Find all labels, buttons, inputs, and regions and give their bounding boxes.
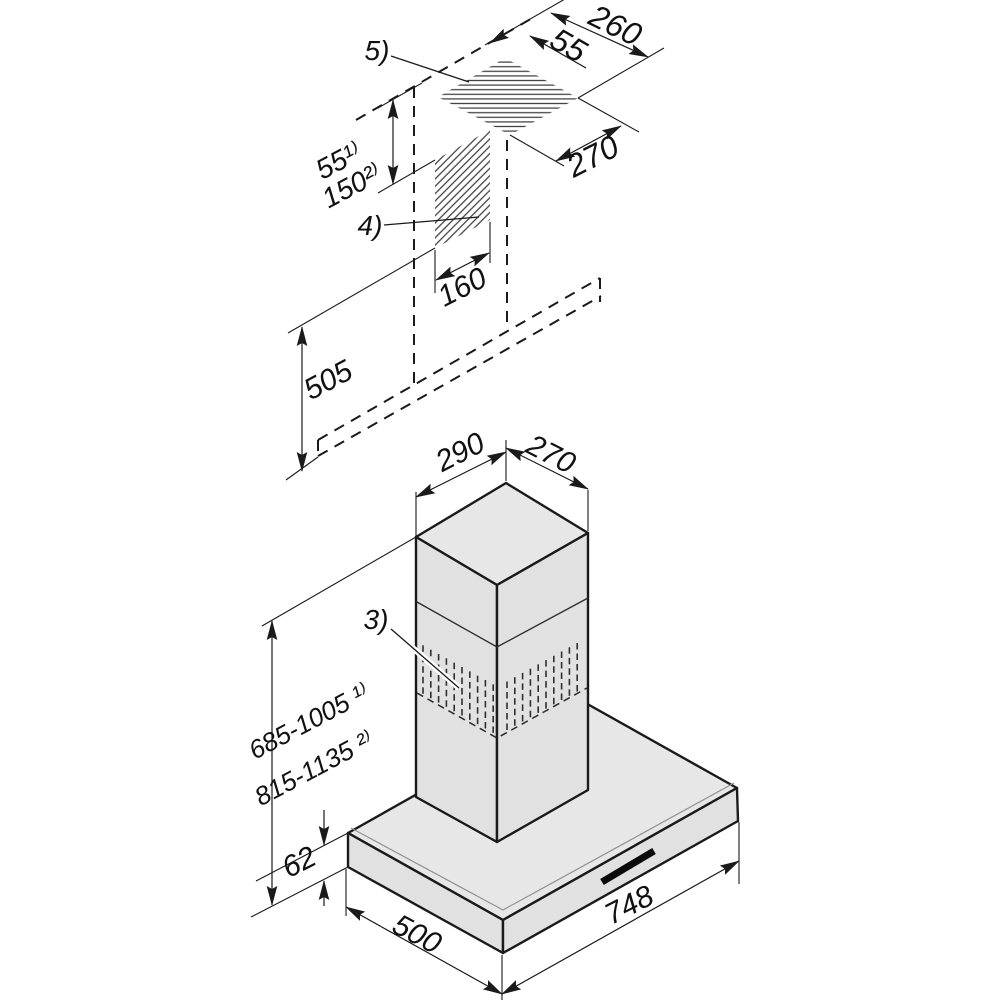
dim-wall-duct-width-label: 160 xyxy=(432,261,492,313)
chimney-right-face xyxy=(497,533,588,842)
hood-dimension-diagram: 260 55 270 55¹⁾ 150²⁾ 5) 4) 160 505 290 … xyxy=(0,0,1000,1000)
chimney xyxy=(416,483,588,842)
dim-canopy-height-label: 62 xyxy=(277,840,322,885)
ceiling-cutout-hatch xyxy=(438,58,578,135)
wall-duct-hatch xyxy=(435,130,490,248)
dim-ceiling-width-label: 260 xyxy=(583,0,648,53)
callout-wall-duct-label: 4) xyxy=(358,210,383,241)
callout-ceiling-label: 5) xyxy=(365,35,390,66)
callout-vent-label: 3) xyxy=(364,604,389,635)
dim-chimney-width-label: 290 xyxy=(430,426,491,479)
dim-chimney-depth-label: 270 xyxy=(520,428,581,481)
diagram-canvas: 260 55 270 55¹⁾ 150²⁾ 5) 4) 160 505 290 … xyxy=(0,0,1000,1000)
ceiling-dimensions xyxy=(286,0,664,480)
dim-wall-height-label: 505 xyxy=(298,354,358,407)
dim-ceiling-depth-label: 270 xyxy=(560,128,625,185)
